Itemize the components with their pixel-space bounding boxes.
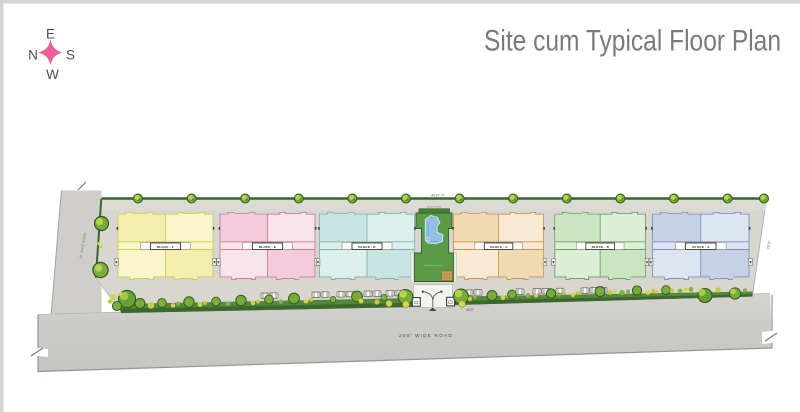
svg-text:Site cum Typical Floor Plan: Site cum Typical Floor Plan xyxy=(484,25,781,58)
svg-text:BLOCK - E: BLOCK - E xyxy=(259,245,276,249)
svg-text:200' WIDE ROAD: 200' WIDE ROAD xyxy=(399,333,453,339)
svg-text:E: E xyxy=(46,27,55,42)
svg-text:SWIMMING POOL: SWIMMING POOL xyxy=(423,265,443,267)
svg-text:BLOCK - D: BLOCK - D xyxy=(358,245,376,249)
svg-text:40'0": 40'0" xyxy=(466,308,475,312)
svg-text:BLOCK - A: BLOCK - A xyxy=(692,245,710,249)
svg-text:BLOCK - F: BLOCK - F xyxy=(157,245,174,249)
svg-text:S: S xyxy=(66,48,75,63)
svg-text:BLOCK - B: BLOCK - B xyxy=(592,245,610,249)
svg-text:BLOCK - C: BLOCK - C xyxy=(490,245,508,249)
svg-text:CLUB HOUSE: CLUB HOUSE xyxy=(427,207,442,209)
svg-text:4037' 0": 4037' 0" xyxy=(431,194,445,198)
svg-text:W: W xyxy=(46,67,59,82)
svg-text:N: N xyxy=(28,48,38,63)
